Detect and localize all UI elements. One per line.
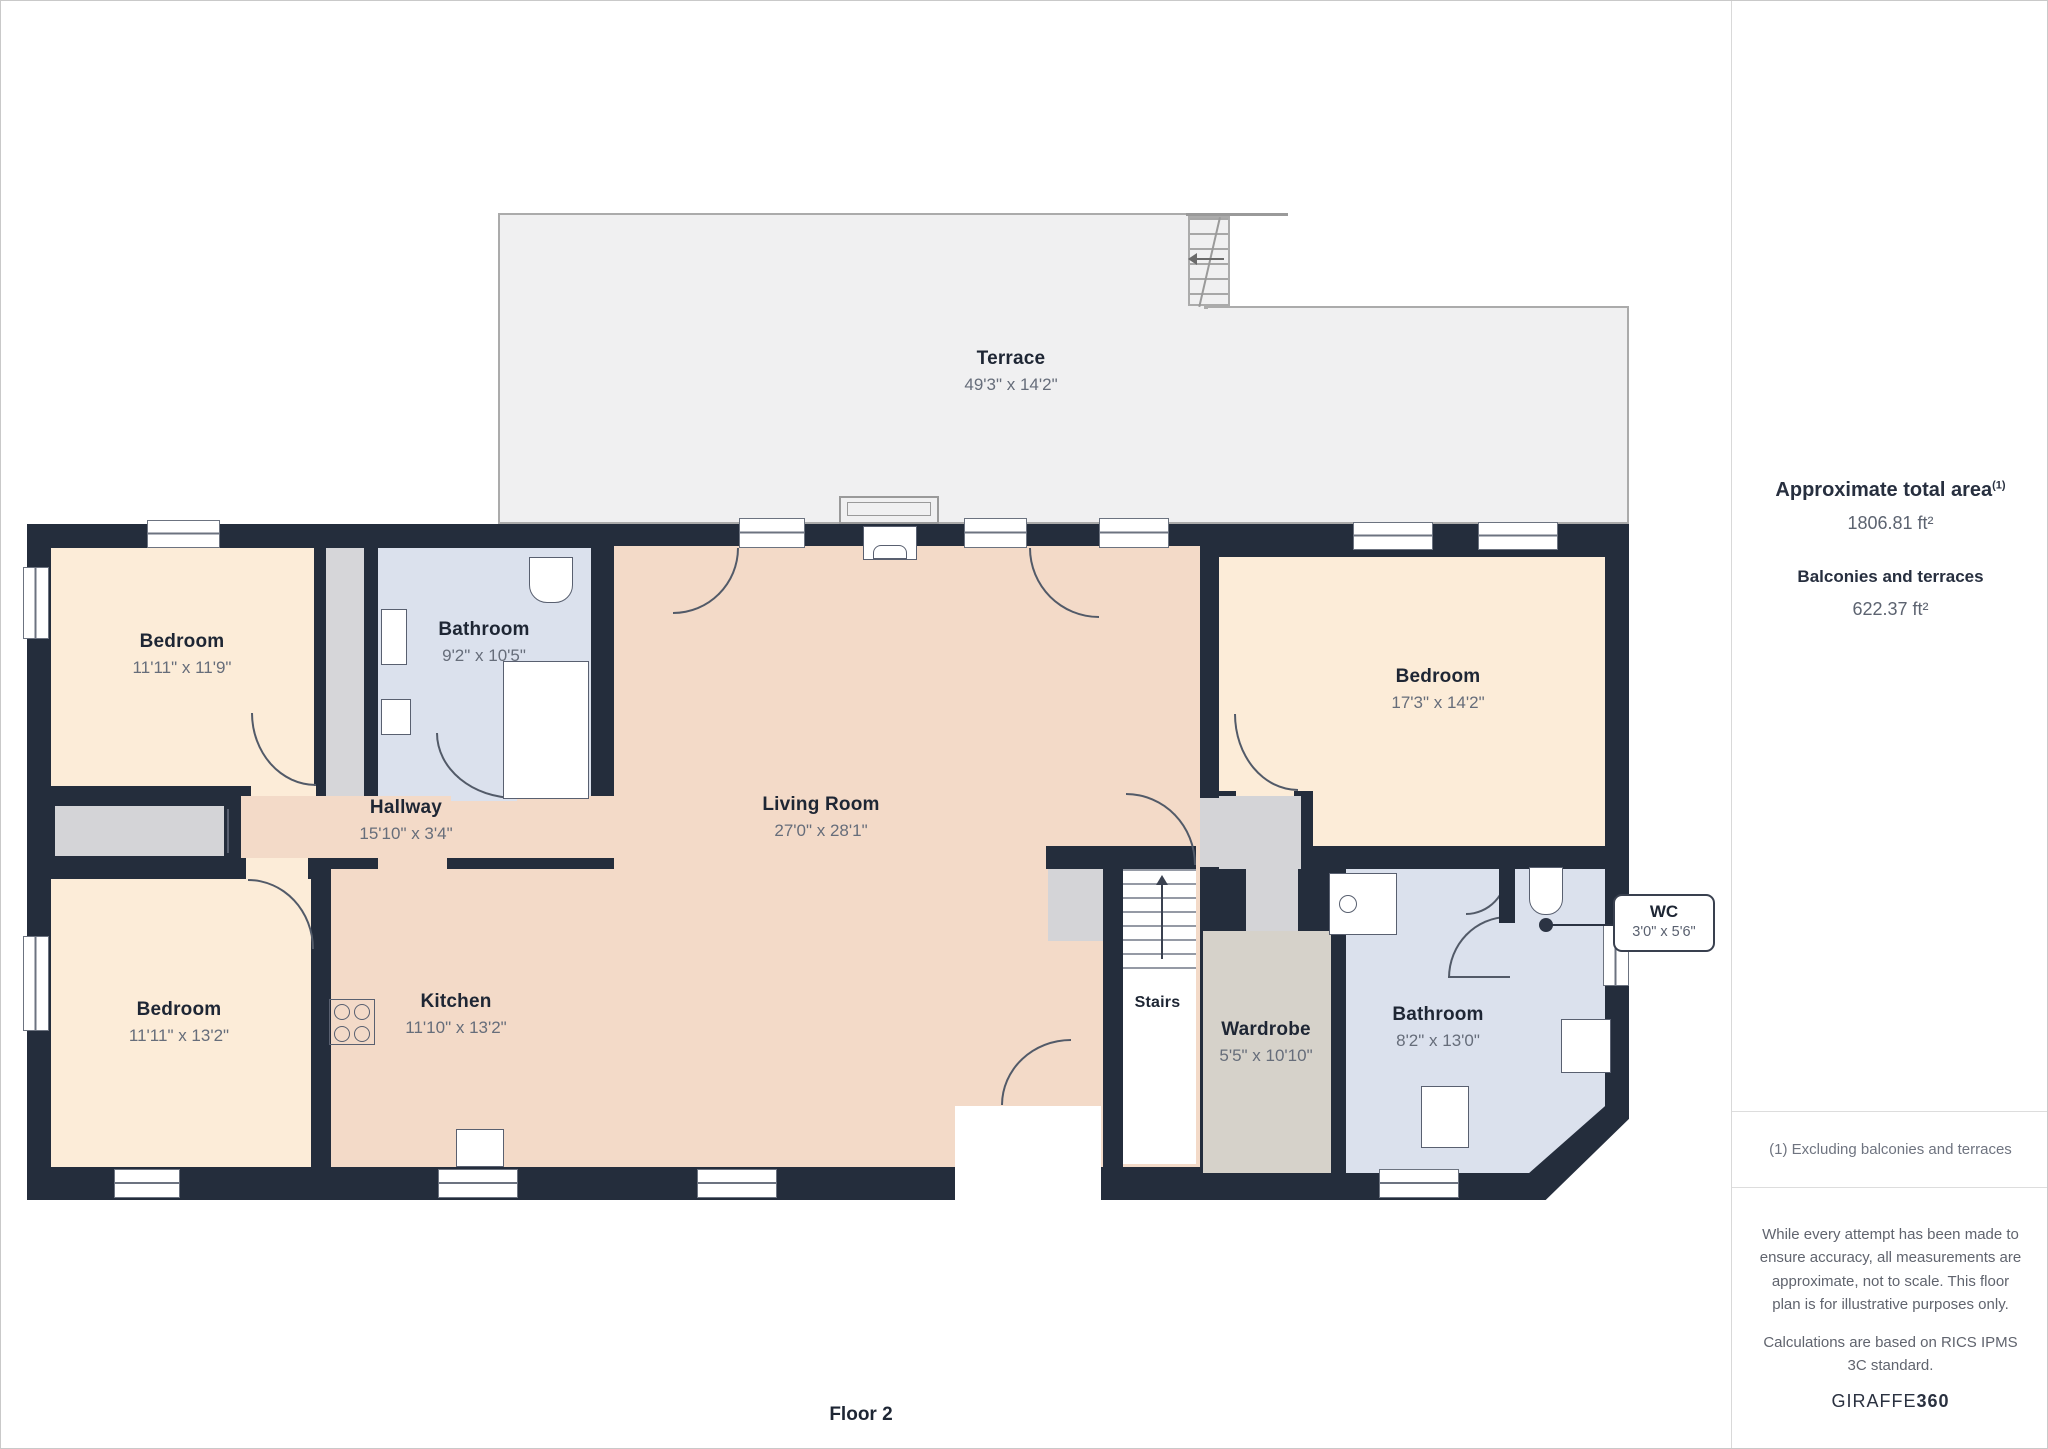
wc-name: WC bbox=[1615, 902, 1713, 922]
closet-top-left bbox=[326, 548, 364, 801]
exterior-stairs-landing-line bbox=[1186, 213, 1288, 216]
wall-wc-divider bbox=[1499, 869, 1515, 923]
closet-left-middle bbox=[55, 806, 224, 856]
stairs-arrow-line bbox=[1161, 885, 1163, 959]
bathroom-tl-dims: 9'2" x 10'5" bbox=[384, 646, 584, 666]
window-bedroom-r-top-2 bbox=[1478, 522, 1558, 550]
window-living-top bbox=[964, 518, 1027, 548]
bathroom-r-label: Bathroom 8'2" x 13'0" bbox=[1338, 1004, 1538, 1051]
bedroom-tl-dims: 11'11" x 11'9" bbox=[42, 658, 322, 678]
sidebar-total-area-value: 1806.81 ft² bbox=[1732, 513, 2048, 534]
bathroom-tl-name: Bathroom bbox=[384, 619, 584, 641]
sidebar-note: (1) Excluding balconies and terraces bbox=[1769, 1141, 2012, 1158]
bedroom-r-dims: 17'3" x 14'2" bbox=[1288, 693, 1588, 713]
window-bathroom-r-bottom bbox=[1379, 1169, 1459, 1198]
window-living-bottom bbox=[697, 1169, 777, 1198]
window-bedroom-tl-top bbox=[147, 520, 220, 548]
bedroom-bl-dims: 11'11" x 13'2" bbox=[49, 1026, 309, 1046]
exterior-stairs-arrow-head bbox=[1188, 253, 1197, 265]
bathroom-r-sink bbox=[1561, 1019, 1611, 1073]
bedroom-bl-name: Bedroom bbox=[49, 999, 309, 1021]
window-kitchen-bottom bbox=[438, 1169, 518, 1198]
bedroom-tl-label: Bedroom 11'11" x 11'9" bbox=[42, 631, 322, 678]
fireplace-hearth-inner bbox=[847, 502, 931, 516]
sidebar-total-area-title: Approximate total area(1) bbox=[1732, 479, 2048, 502]
sidebar-note-box: (1) Excluding balconies and terraces bbox=[1732, 1111, 2048, 1188]
bathroom-r-dims: 8'2" x 13'0" bbox=[1338, 1031, 1538, 1051]
window-living-door-b bbox=[1099, 518, 1169, 548]
terrace-seam bbox=[1202, 309, 1210, 522]
bathroom-tl-shower bbox=[503, 661, 589, 799]
door-gap-kitchen bbox=[378, 858, 447, 869]
stairs-arrow-head bbox=[1156, 875, 1168, 885]
wall-left-of-stairs bbox=[1103, 846, 1123, 1200]
vestibule bbox=[1219, 796, 1301, 869]
hallway-dims: 15'10" x 3'4" bbox=[286, 824, 526, 844]
sidebar-disclaimer-1: While every attempt has been made to ens… bbox=[1759, 1223, 2022, 1316]
room-bedroom-right-lower bbox=[1313, 791, 1605, 846]
wc-dims: 3'0" x 5'6" bbox=[1615, 924, 1713, 940]
hallway-name: Hallway bbox=[286, 797, 526, 819]
terrace-area-right bbox=[1206, 306, 1629, 524]
door-gap-wardrobe bbox=[1246, 869, 1298, 931]
wardrobe-label: Wardrobe 5'5" x 10'10" bbox=[1181, 1019, 1351, 1066]
sidebar-balconies-value: 622.37 ft² bbox=[1732, 599, 2048, 620]
window-living-door-a bbox=[739, 518, 805, 548]
sidebar-divider bbox=[1731, 1, 1732, 1449]
kitchen-name: Kitchen bbox=[331, 991, 581, 1013]
living-name: Living Room bbox=[671, 794, 971, 816]
brand-text: GIRAFFE bbox=[1831, 1391, 1916, 1411]
bathroom-r-name: Bathroom bbox=[1338, 1004, 1538, 1026]
wardrobe-dims: 5'5" x 10'10" bbox=[1181, 1046, 1351, 1066]
door-gap-bedroom-right bbox=[1236, 791, 1294, 796]
terrace-dims: 49'3" x 14'2" bbox=[861, 375, 1161, 395]
door-gap-vestibule bbox=[1200, 798, 1219, 867]
living-dims: 27'0" x 28'1" bbox=[671, 821, 971, 841]
entrance-recess bbox=[955, 1106, 1101, 1200]
wc-toilet bbox=[1529, 867, 1563, 915]
floorplan-page: Terrace 49'3" x 14'2" bbox=[0, 0, 2048, 1449]
bedroom-tl-name: Bedroom bbox=[42, 631, 322, 653]
living-label: Living Room 27'0" x 28'1" bbox=[671, 794, 971, 841]
window-bedroom-bl-bottom bbox=[114, 1169, 180, 1198]
kitchen-dims: 11'10" x 13'2" bbox=[331, 1018, 581, 1038]
stair-landing bbox=[1048, 869, 1103, 941]
bathroom-r-shower-drain bbox=[1339, 895, 1357, 913]
stairs-label: Stairs bbox=[1105, 994, 1210, 1012]
bedroom-r-name: Bedroom bbox=[1288, 666, 1588, 688]
door-gap-bedroom-tl bbox=[251, 786, 316, 796]
bathroom-r-cabinet bbox=[1421, 1086, 1469, 1148]
wardrobe-name: Wardrobe bbox=[1181, 1019, 1351, 1041]
sidebar-balconies-label: Balconies and terraces bbox=[1732, 567, 2048, 587]
door-leaf-bathroom-right bbox=[1448, 976, 1510, 978]
hallway-label: Hallway 15'10" x 3'4" bbox=[286, 797, 526, 844]
bathroom-tl-sink bbox=[381, 699, 411, 735]
terrace-label: Terrace 49'3" x 14'2" bbox=[861, 348, 1161, 395]
sidebar-disclaimer-2: Calculations are based on RICS IPMS 3C s… bbox=[1759, 1331, 2022, 1378]
door-gap-bedroom-bl bbox=[246, 858, 308, 879]
wc-callout: WC 3'0" x 5'6" bbox=[1613, 894, 1715, 952]
stairs-name: Stairs bbox=[1105, 994, 1210, 1012]
exterior-stairs-arrow-line bbox=[1196, 258, 1224, 260]
kitchen-label: Kitchen 11'10" x 13'2" bbox=[331, 991, 581, 1038]
terrace-name: Terrace bbox=[861, 348, 1161, 370]
closet-slider-line bbox=[227, 809, 229, 853]
brand-text-bold: 360 bbox=[1916, 1391, 1949, 1411]
window-bedroom-bl-left bbox=[23, 936, 49, 1031]
floor-label: Floor 2 bbox=[781, 1404, 941, 1426]
total-area-label: Approximate total area bbox=[1775, 479, 1992, 501]
wc-connector-line bbox=[1551, 924, 1615, 926]
kitchen-sink bbox=[456, 1129, 504, 1167]
total-area-note-ref: (1) bbox=[1992, 479, 2005, 491]
bedroom-r-label: Bedroom 17'3" x 14'2" bbox=[1288, 666, 1588, 713]
fireplace-stove bbox=[873, 545, 907, 559]
brand-logo: GIRAFFE360 bbox=[1732, 1391, 2048, 1412]
window-bedroom-r-top-1 bbox=[1353, 522, 1433, 550]
bathroom-tl-toilet bbox=[529, 557, 573, 603]
bedroom-bl-label: Bedroom 11'11" x 13'2" bbox=[49, 999, 309, 1046]
window-bedroom-tl-left bbox=[23, 567, 49, 639]
bathroom-tl-label: Bathroom 9'2" x 10'5" bbox=[384, 619, 584, 666]
